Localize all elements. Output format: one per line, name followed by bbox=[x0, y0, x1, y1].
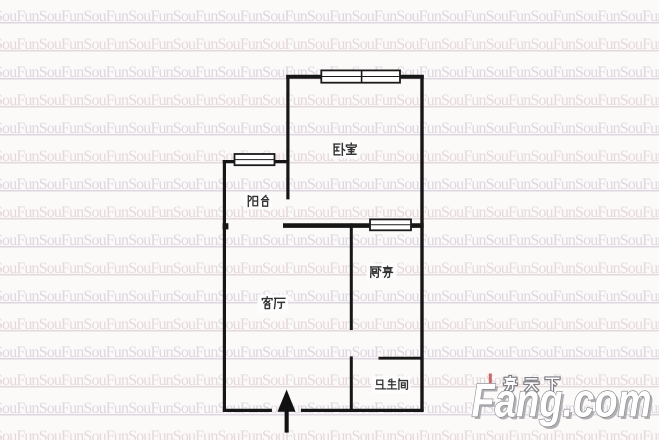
svg-text:SouFunSouFunSouFunSouFunSouFun: SouFunSouFunSouFunSouFunSouFunSouFunSouF… bbox=[0, 232, 659, 249]
svg-text:SouFunSouFunSouFunSouFunSouFun: SouFunSouFunSouFunSouFunSouFunSouFunSouF… bbox=[0, 92, 659, 109]
svg-text:SouFunSouFunSouFunSouFunSouFun: SouFunSouFunSouFunSouFunSouFunSouFunSouF… bbox=[0, 204, 659, 221]
svg-text:SouFunSouFunSouFunSouFunSouFun: SouFunSouFunSouFunSouFunSouFunSouFunSouF… bbox=[0, 428, 659, 440]
svg-text:SouFunSouFunSouFunSouFunSouFun: SouFunSouFunSouFunSouFunSouFunSouFunSouF… bbox=[0, 120, 659, 137]
svg-text:SouFunSouFunSouFunSouFunSouFun: SouFunSouFunSouFunSouFunSouFunSouFunSouF… bbox=[0, 288, 659, 305]
svg-text:SouFunSouFunSouFunSouFunSouFun: SouFunSouFunSouFunSouFunSouFunSouFunSouF… bbox=[0, 316, 659, 333]
svg-text:SouFunSouFunSouFunSouFunSouFun: SouFunSouFunSouFunSouFunSouFunSouFunSouF… bbox=[0, 36, 659, 53]
svg-text:SouFunSouFunSouFunSouFunSouFun: SouFunSouFunSouFunSouFunSouFunSouFunSouF… bbox=[0, 8, 659, 25]
svg-text:SouFunSouFunSouFunSouFunSouFun: SouFunSouFunSouFunSouFunSouFunSouFunSouF… bbox=[0, 176, 659, 193]
svg-text:Fang.com: Fang.com bbox=[472, 374, 652, 427]
svg-text:SouFunSouFunSouFunSouFunSouFun: SouFunSouFunSouFunSouFunSouFunSouFunSouF… bbox=[0, 344, 659, 361]
svg-text:SouFunSouFunSouFunSouFunSouFun: SouFunSouFunSouFunSouFunSouFunSouFunSouF… bbox=[0, 260, 659, 277]
